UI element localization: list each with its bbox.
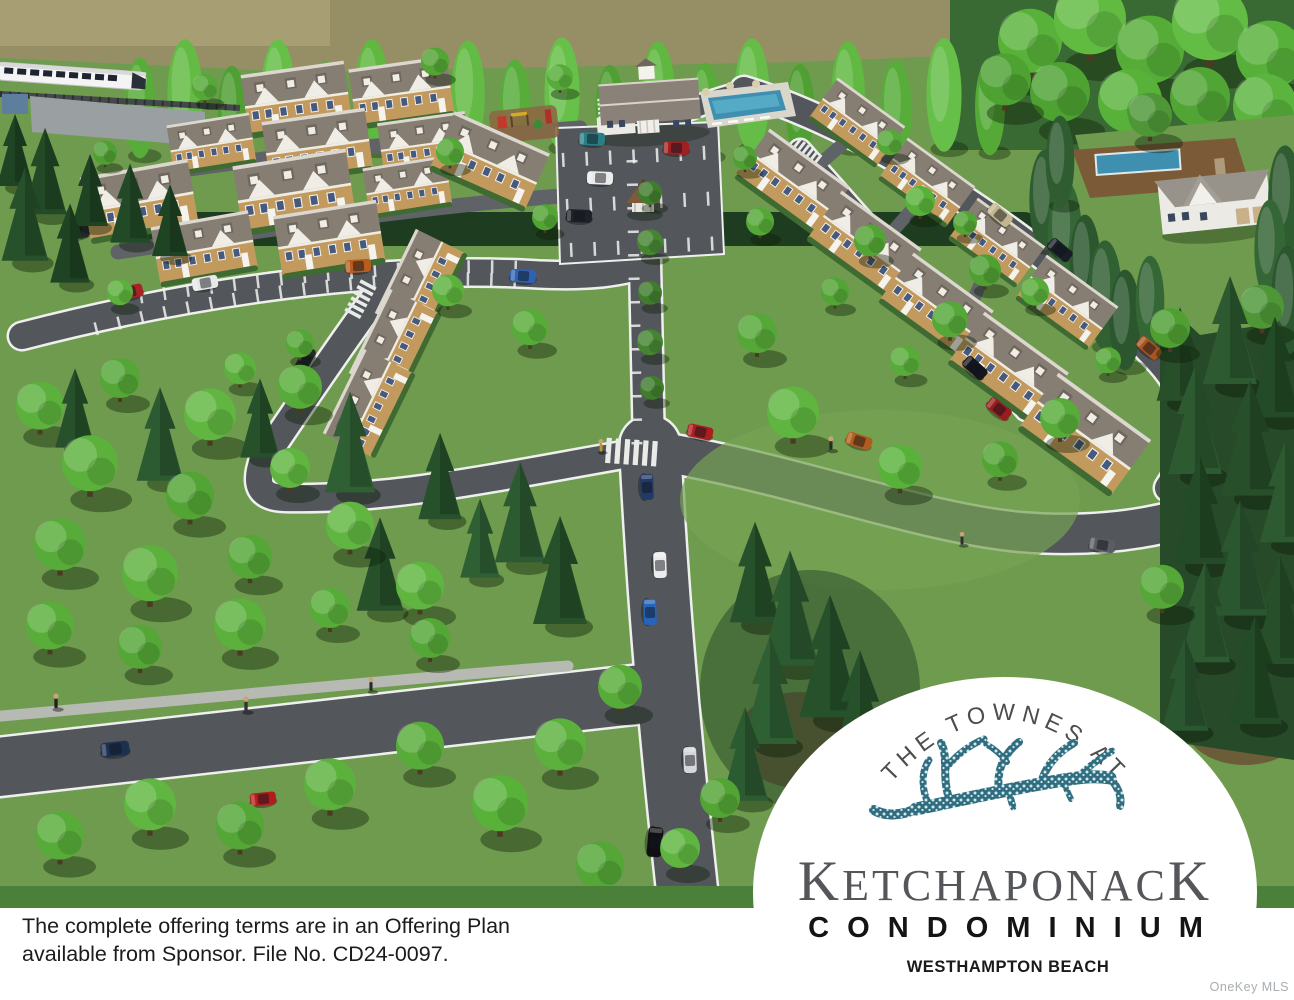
cupola <box>638 66 655 80</box>
logo-location: WESTHAMPTON BEACH <box>907 958 1110 976</box>
site-aerial-rendering: THE TOWNES AT KETCHAPONACK C O N D O M I… <box>0 0 1294 1000</box>
blue-building <box>2 94 28 114</box>
mls-watermark: OneKey MLS <box>1210 980 1289 994</box>
listing-rendering: THE TOWNES AT KETCHAPONACK C O N D O M I… <box>0 0 1294 1000</box>
disclaimer-line-2: available from Sponsor. File No. CD24-00… <box>22 942 449 966</box>
disclaimer-line-1: The complete offering terms are in an Of… <box>22 914 510 938</box>
logo-subtitle: C O N D O M I N I U M <box>808 912 1208 944</box>
